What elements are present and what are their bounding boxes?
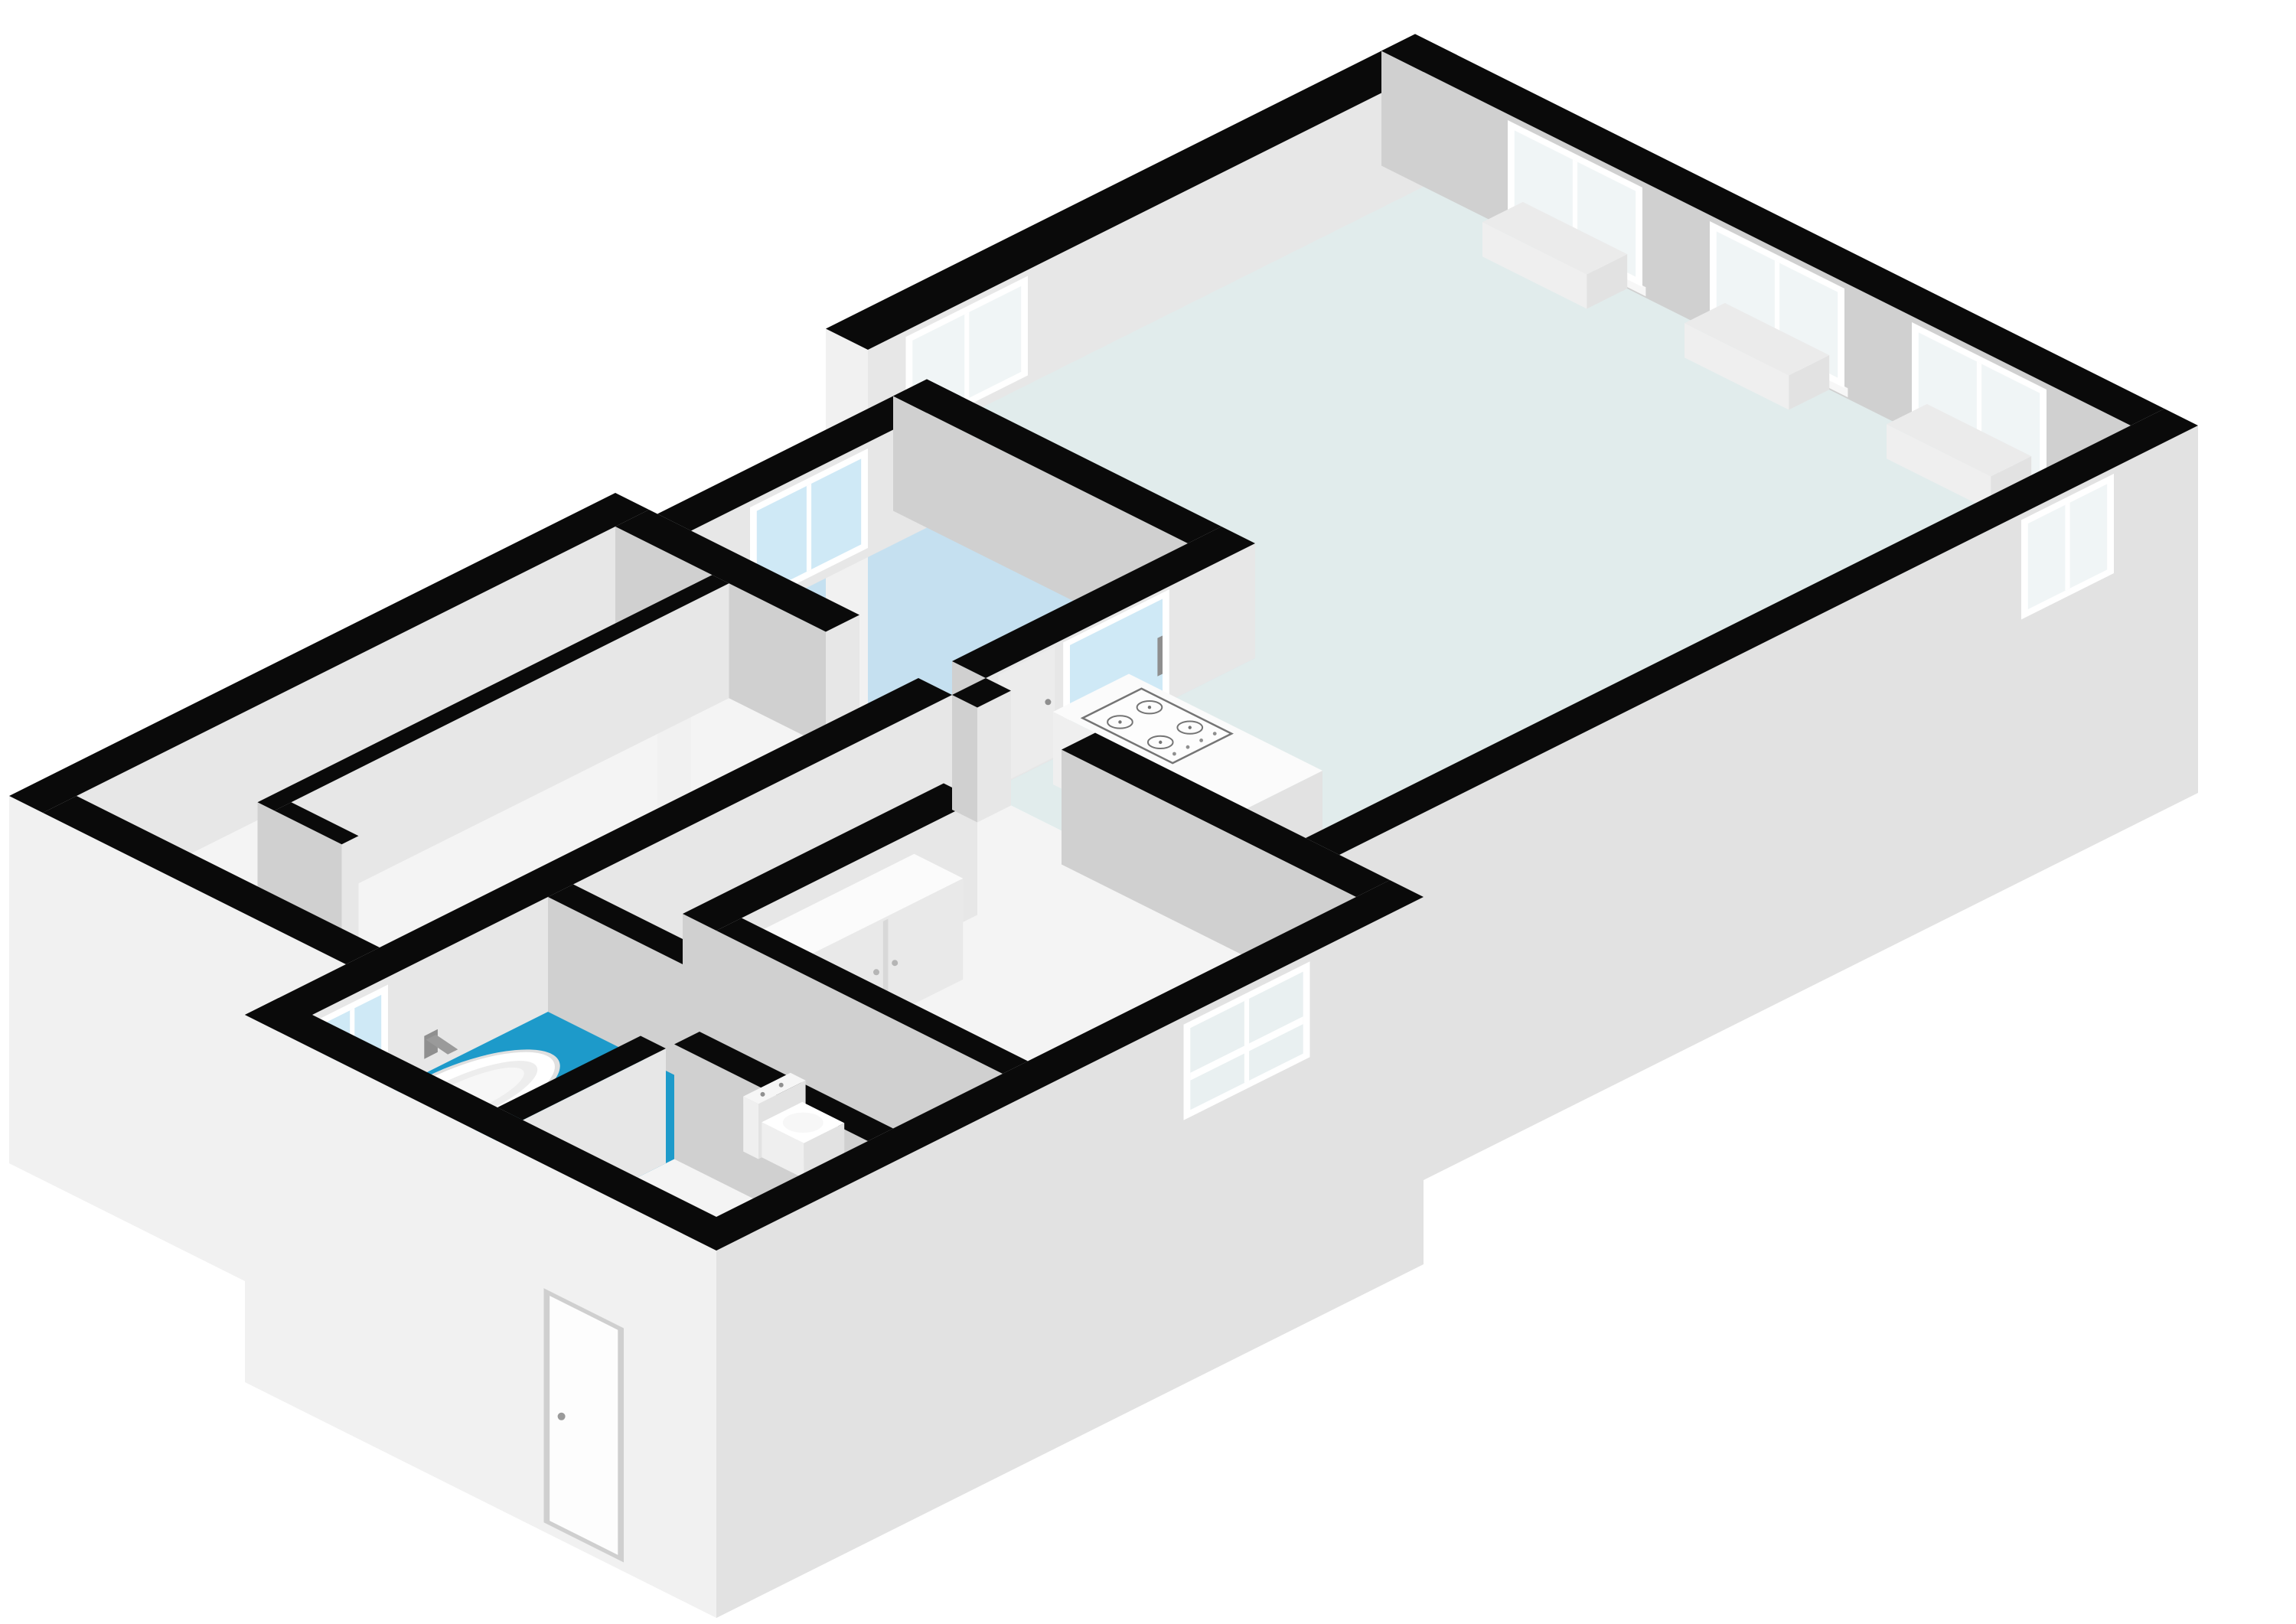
floorplan-3d-render	[0, 0, 2296, 1624]
front-door	[544, 1288, 625, 1562]
floorplan-viewport	[0, 0, 2296, 1624]
